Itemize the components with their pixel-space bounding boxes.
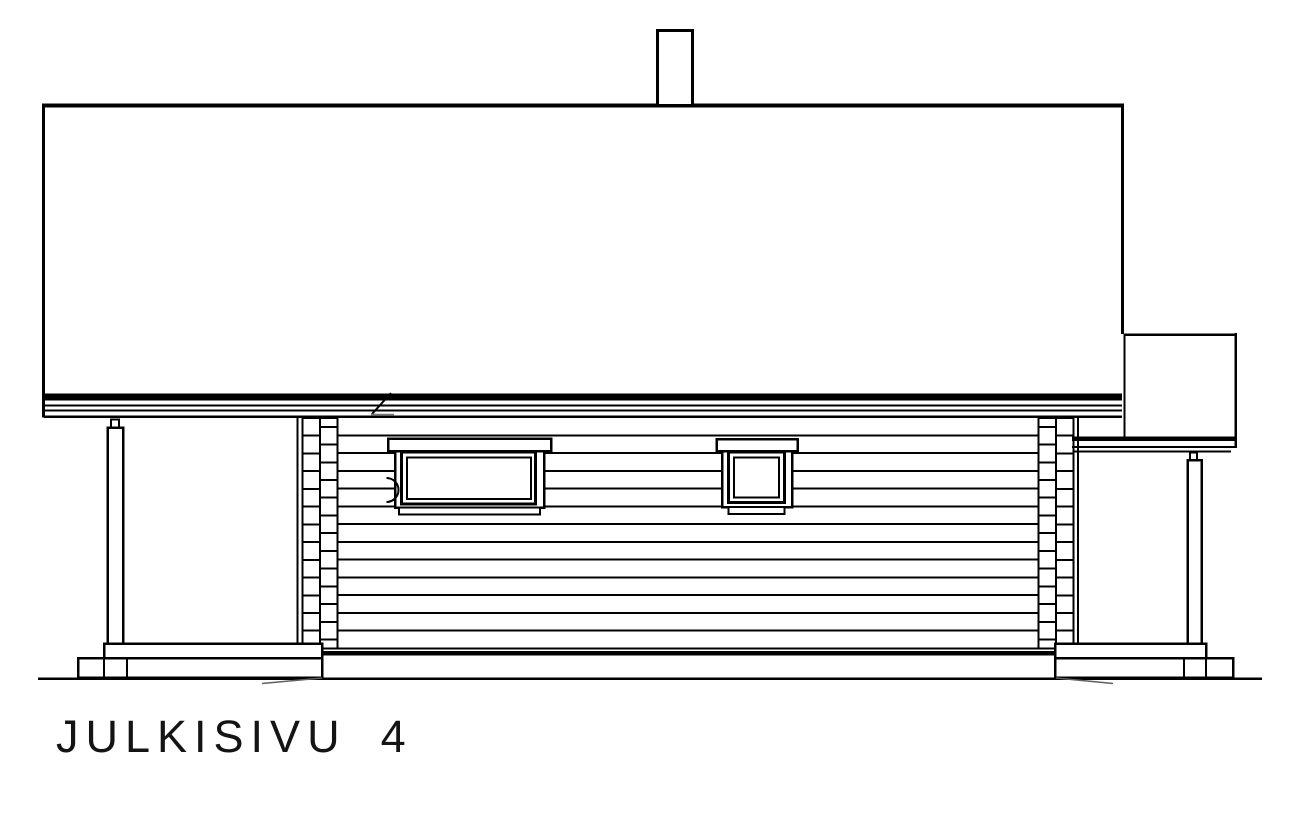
foundation-right [1055,644,1233,678]
annex-roof [1072,333,1237,452]
fascia-board [44,394,1122,401]
window-right-glass [734,458,779,498]
porch-post-left [108,420,124,644]
foundation-right-upper-slab [1055,644,1206,659]
window-left-top-trim [388,439,551,452]
foundation-left [78,644,322,678]
porch-post-right [1188,453,1202,644]
post-right-body [1188,460,1202,644]
foundation-left-upper-slab [104,644,322,659]
ground [38,678,1262,684]
post-left-body [108,428,124,644]
window-left [388,439,551,515]
window-right [717,439,798,514]
drawing-sheet: JULKISIVU4 [0,0,1303,819]
drawing-title-label: JULKISIVU [56,711,347,762]
annex-fascia-board [1072,437,1237,442]
window-right-sill [729,507,785,514]
main-roof [42,104,1124,418]
window-right-top-trim [717,439,798,451]
log-corner-right [1039,418,1079,649]
window-left-sill [399,508,540,515]
chimney [658,31,693,105]
foundation-left-lower-slab [78,658,322,678]
log-corner-left [298,418,338,649]
drawing-title-number: 4 [381,711,413,762]
window-left-glass [407,458,531,500]
eaves-fascia [44,394,1122,417]
elevation-drawing [0,0,1303,819]
drawing-title: JULKISIVU4 [56,711,413,763]
